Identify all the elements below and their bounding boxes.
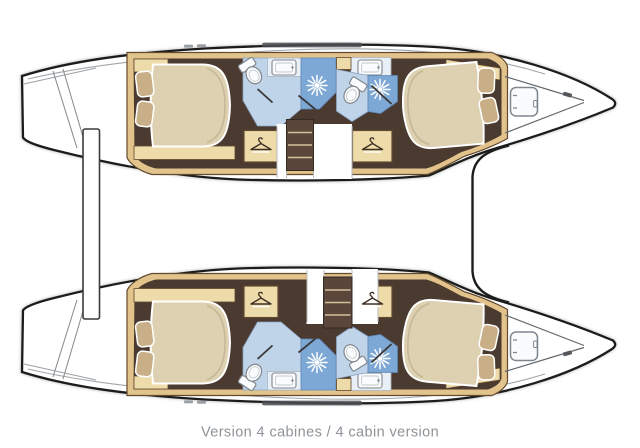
port-companionway (277, 120, 353, 180)
aft-centre-beam (83, 129, 100, 319)
forward-crossbeam (473, 146, 510, 303)
catamaran-floorplan: Version 4 cabines / 4 cabin version (0, 0, 640, 448)
catamaran-floorplan-canvas: Version 4 cabines / 4 cabin version (0, 0, 640, 448)
entry-opening (352, 269, 378, 324)
entry-opening (314, 124, 353, 179)
starboard-companionway (307, 269, 379, 328)
caption: Version 4 cabines / 4 cabin version (201, 425, 439, 441)
entry-opening (307, 269, 325, 324)
entry-opening (277, 124, 288, 179)
